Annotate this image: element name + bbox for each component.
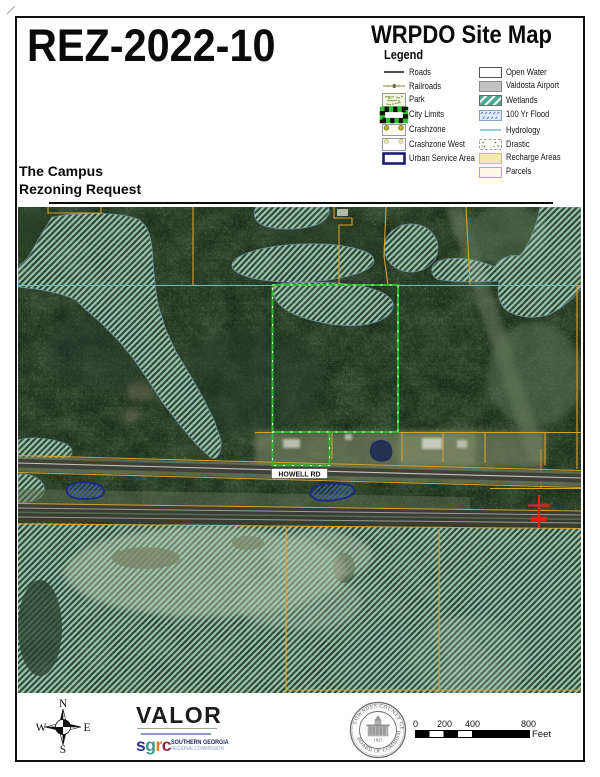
svg-text:S: S <box>60 744 66 756</box>
svg-text:1825: 1825 <box>373 738 383 743</box>
svg-text:E: E <box>83 722 90 734</box>
svg-text:W: W <box>36 722 47 734</box>
svg-text:HOWELL RD: HOWELL RD <box>278 472 320 479</box>
svg-text:N: N <box>59 698 68 710</box>
